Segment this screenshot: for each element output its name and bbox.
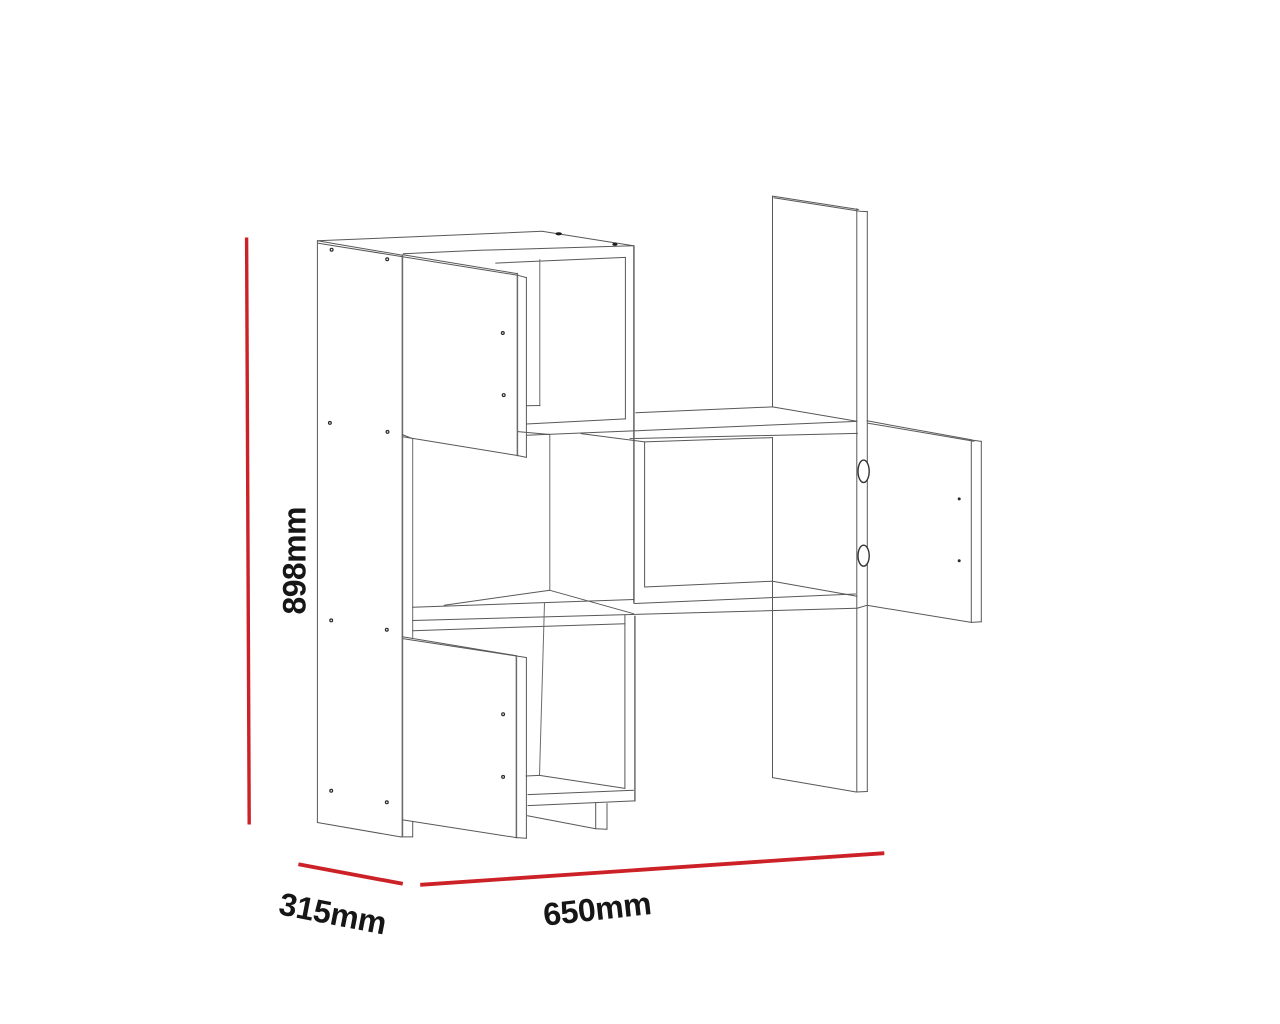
svg-text:898mm: 898mm: [277, 507, 313, 614]
